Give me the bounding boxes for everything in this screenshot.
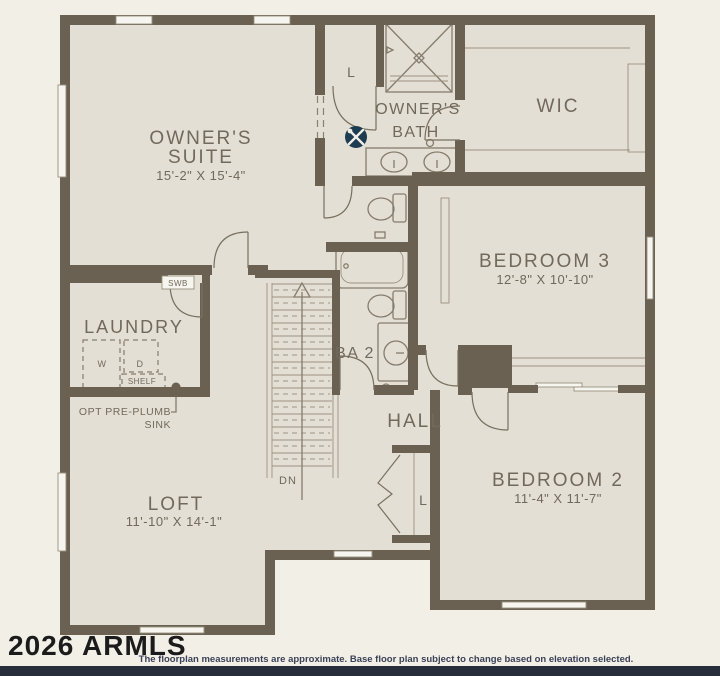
opt-preplumb-label: OPT PRE-PLUMB: [79, 406, 171, 418]
customization-tools-icon: [345, 126, 367, 148]
bedroom2-dims: 11'-4" X 11'-7": [514, 491, 602, 506]
bedroom2-label: BEDROOM 2: [492, 470, 624, 491]
dryer-label: D: [137, 359, 144, 369]
washer-label: W: [98, 359, 107, 369]
wic-label: WIC: [537, 96, 580, 117]
linen-hall-label: L: [419, 492, 427, 508]
ba2-label: BA 2: [335, 345, 375, 362]
bedroom3-dims: 12'-8" X 10'-10": [496, 272, 593, 287]
svg-text:SINK: SINK: [144, 419, 171, 431]
bedroom3-label: BEDROOM 3: [479, 251, 611, 272]
bypass-door-2: [574, 387, 620, 391]
bypass-door-1: [536, 383, 582, 387]
owners-bath-label: OWNER'S: [375, 101, 461, 118]
disclaimer-text: The floorplan measurements are approxima…: [139, 654, 634, 665]
stairs-down-label: DN: [279, 475, 297, 487]
laundry-label: LAUNDRY: [84, 317, 184, 337]
swb-label: SWB: [168, 279, 188, 288]
linen-upper-label: L: [347, 64, 355, 80]
loft-label: LOFT: [148, 494, 205, 515]
svg-text:SUITE: SUITE: [168, 147, 234, 168]
floorplan-page: OWNER'S SUITE 15'-2" X 15'-4" OWNER'S BA…: [0, 0, 720, 676]
owners-suite-dims: 15'-2" X 15'-4": [156, 168, 246, 183]
loft-dims: 11'-10" X 14'-1": [126, 514, 222, 529]
svg-text:BATH: BATH: [392, 124, 439, 141]
footer-bar: [0, 666, 720, 676]
shelf-label: SHELF: [128, 377, 156, 386]
owners-suite-label: OWNER'S: [149, 128, 252, 149]
floorplan-canvas: OWNER'S SUITE 15'-2" X 15'-4" OWNER'S BA…: [0, 0, 720, 676]
hall-label: HALL: [387, 411, 443, 432]
